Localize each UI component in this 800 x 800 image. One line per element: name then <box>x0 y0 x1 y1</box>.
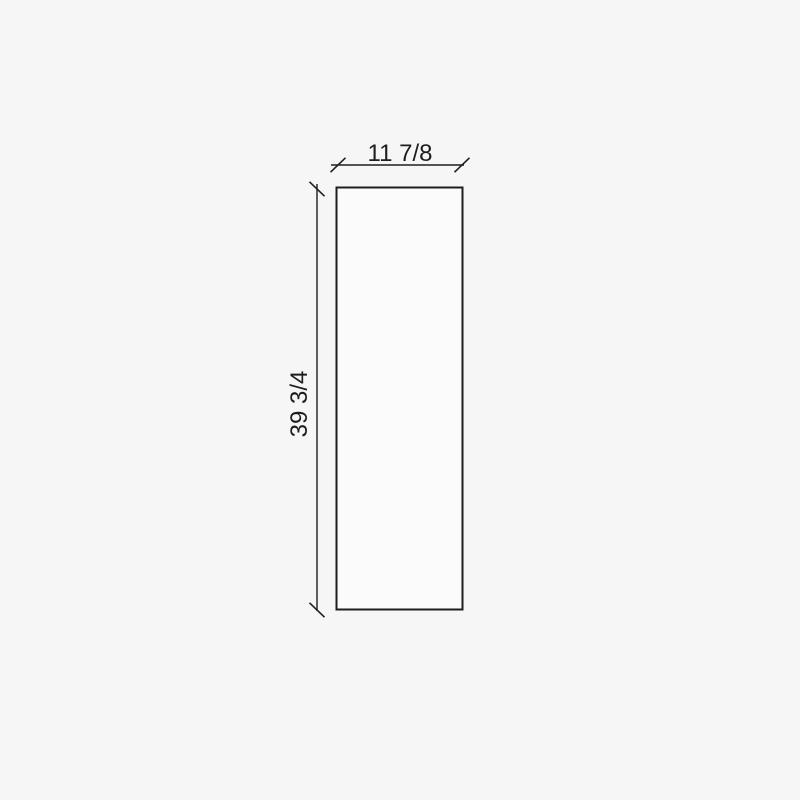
dimension-drawing-page: 11 7/8 39 3/4 <box>0 0 800 800</box>
height-dimension-label: 39 3/4 <box>286 371 313 438</box>
width-dimension-label: 11 7/8 <box>368 140 433 167</box>
panel-outline <box>337 188 463 610</box>
dimension-drawing: 11 7/8 39 3/4 <box>0 0 800 800</box>
